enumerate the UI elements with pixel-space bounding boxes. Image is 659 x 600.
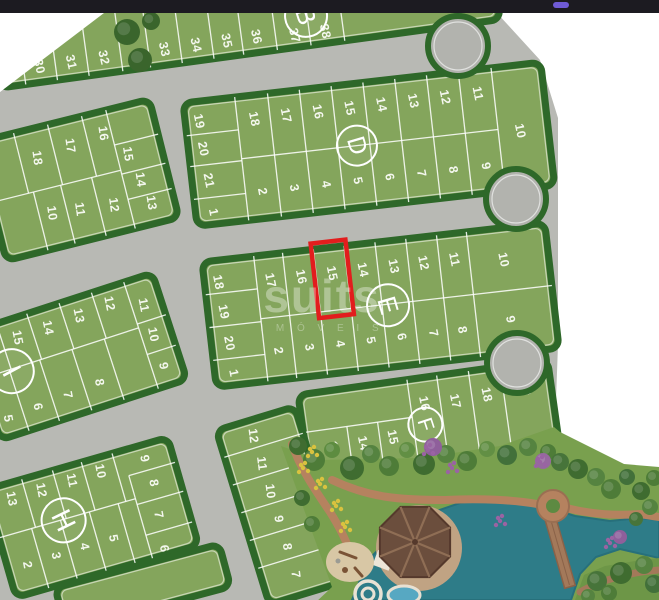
- lot-number-row2-left-13: 13: [144, 194, 160, 211]
- tree-icon: [568, 459, 588, 479]
- lot-number-D-10: 10: [512, 122, 529, 139]
- lot-number-D-12: 12: [437, 89, 454, 106]
- status-bar-accessory-icon: [553, 2, 569, 8]
- lot-number-E-10: 10: [495, 251, 512, 268]
- lot-number-E-11: 11: [446, 251, 463, 268]
- lot-number-row2-left-14: 14: [133, 171, 149, 188]
- tree-icon: [479, 441, 495, 457]
- cul-de-sac: [487, 333, 547, 393]
- tree-icon: [635, 556, 653, 574]
- lot-number-row2-left-16: 16: [95, 125, 111, 142]
- lot-number-annex-12: 12: [246, 428, 262, 445]
- lot-number-I-11: 11: [136, 297, 152, 314]
- watermark-sub: I M Ó V E I S: [260, 321, 383, 334]
- lot-number-row2-left-15: 15: [120, 146, 136, 163]
- lot-number-annex-10: 10: [262, 483, 278, 500]
- tree-icon: [294, 490, 310, 506]
- tree-icon: [601, 479, 621, 499]
- tree-icon: [613, 530, 627, 544]
- tree-icon: [551, 453, 569, 471]
- lot-number-D-11: 11: [470, 85, 487, 102]
- tree-icon: [289, 437, 307, 455]
- tree-icon: [519, 438, 537, 456]
- lot-number-row2-left-17: 17: [62, 137, 78, 154]
- tree-icon: [619, 469, 635, 485]
- pool-icon: [388, 586, 420, 600]
- tree-icon: [629, 512, 643, 526]
- lot-number-D-19: 19: [191, 113, 208, 130]
- tree-icon: [457, 451, 477, 471]
- tree-icon: [324, 442, 340, 458]
- lot-number-H-13: 13: [3, 490, 20, 507]
- tree-icon: [304, 516, 320, 532]
- tree-icon: [340, 456, 364, 480]
- lot-number-E-12: 12: [415, 254, 432, 271]
- lot-number-E-13: 13: [385, 258, 402, 275]
- tree-icon: [632, 482, 650, 500]
- lot-number-D-15: 15: [341, 99, 358, 116]
- lot-number-E-19: 19: [215, 303, 232, 320]
- tree-icon: [128, 48, 152, 72]
- lot-number-I-12: 12: [101, 295, 118, 312]
- lot-number-D-20: 20: [195, 140, 212, 157]
- lot-number-I-14: 14: [40, 319, 57, 336]
- tree-icon: [362, 445, 380, 463]
- tree-icon: [114, 19, 140, 45]
- tree-icon: [413, 453, 435, 475]
- playground-icon: [326, 542, 374, 582]
- lot-number-E-18: 18: [210, 274, 227, 291]
- lot-number-row2-left-18: 18: [29, 150, 45, 167]
- tree-icon: [497, 445, 517, 465]
- lot-number-D-21: 21: [201, 172, 218, 189]
- tree-icon: [610, 562, 632, 584]
- lot-number-row2-left-10: 10: [44, 205, 60, 222]
- lot-number-annex-11: 11: [254, 456, 270, 472]
- lot-number-H-12: 12: [33, 482, 50, 499]
- tree-icon: [142, 12, 160, 30]
- masterplan-screenshot: 29303132333435363738B1817161514131211101…: [0, 0, 659, 600]
- lot-number-D-17: 17: [278, 107, 295, 124]
- masterplan-map[interactable]: 29303132333435363738B1817161514131211101…: [0, 0, 659, 600]
- tree-icon: [587, 468, 605, 486]
- lot-number-D-14: 14: [373, 96, 390, 113]
- lot-number-D-13: 13: [405, 92, 422, 109]
- watermark-brand: suits: [263, 270, 380, 322]
- lot-number-I-10: 10: [145, 326, 162, 343]
- lot-number-H-11: 11: [64, 472, 80, 489]
- lot-number-D-18: 18: [246, 110, 263, 127]
- tree-icon: [379, 456, 399, 476]
- lot-number-row2-left-12: 12: [106, 197, 122, 214]
- lot-number-I-15: 15: [9, 329, 26, 346]
- lot-number-H-10: 10: [92, 463, 109, 480]
- lot-number-row2-left-11: 11: [72, 201, 88, 217]
- lot-number-I-13: 13: [71, 307, 88, 324]
- cul-de-sac: [486, 169, 546, 229]
- tree-icon: [399, 442, 415, 458]
- plaza-green: [546, 499, 560, 513]
- lot-number-D-16: 16: [310, 103, 327, 120]
- tree-icon: [642, 499, 658, 515]
- lot-number-E-20: 20: [221, 335, 238, 352]
- cul-de-sac: [428, 16, 488, 76]
